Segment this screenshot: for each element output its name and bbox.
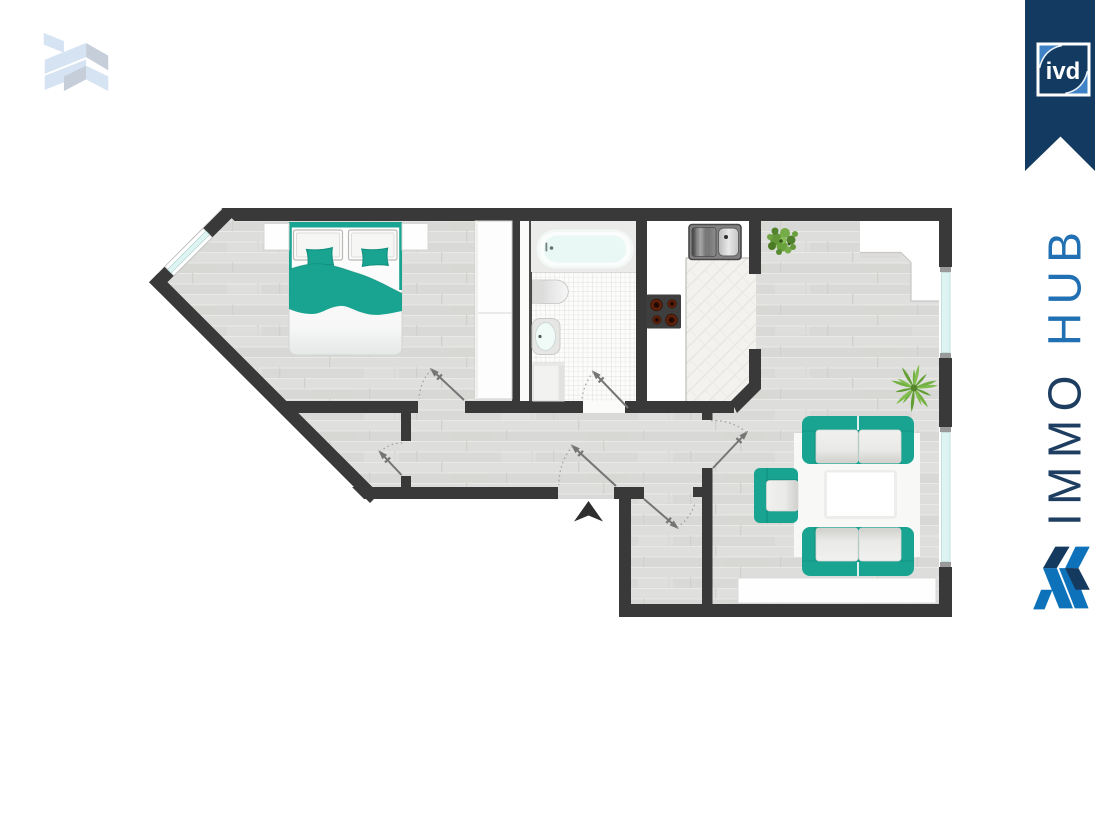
svg-text:IMMO HUB: IMMO HUB xyxy=(1039,224,1091,526)
svg-text:ivd: ivd xyxy=(1046,58,1081,85)
